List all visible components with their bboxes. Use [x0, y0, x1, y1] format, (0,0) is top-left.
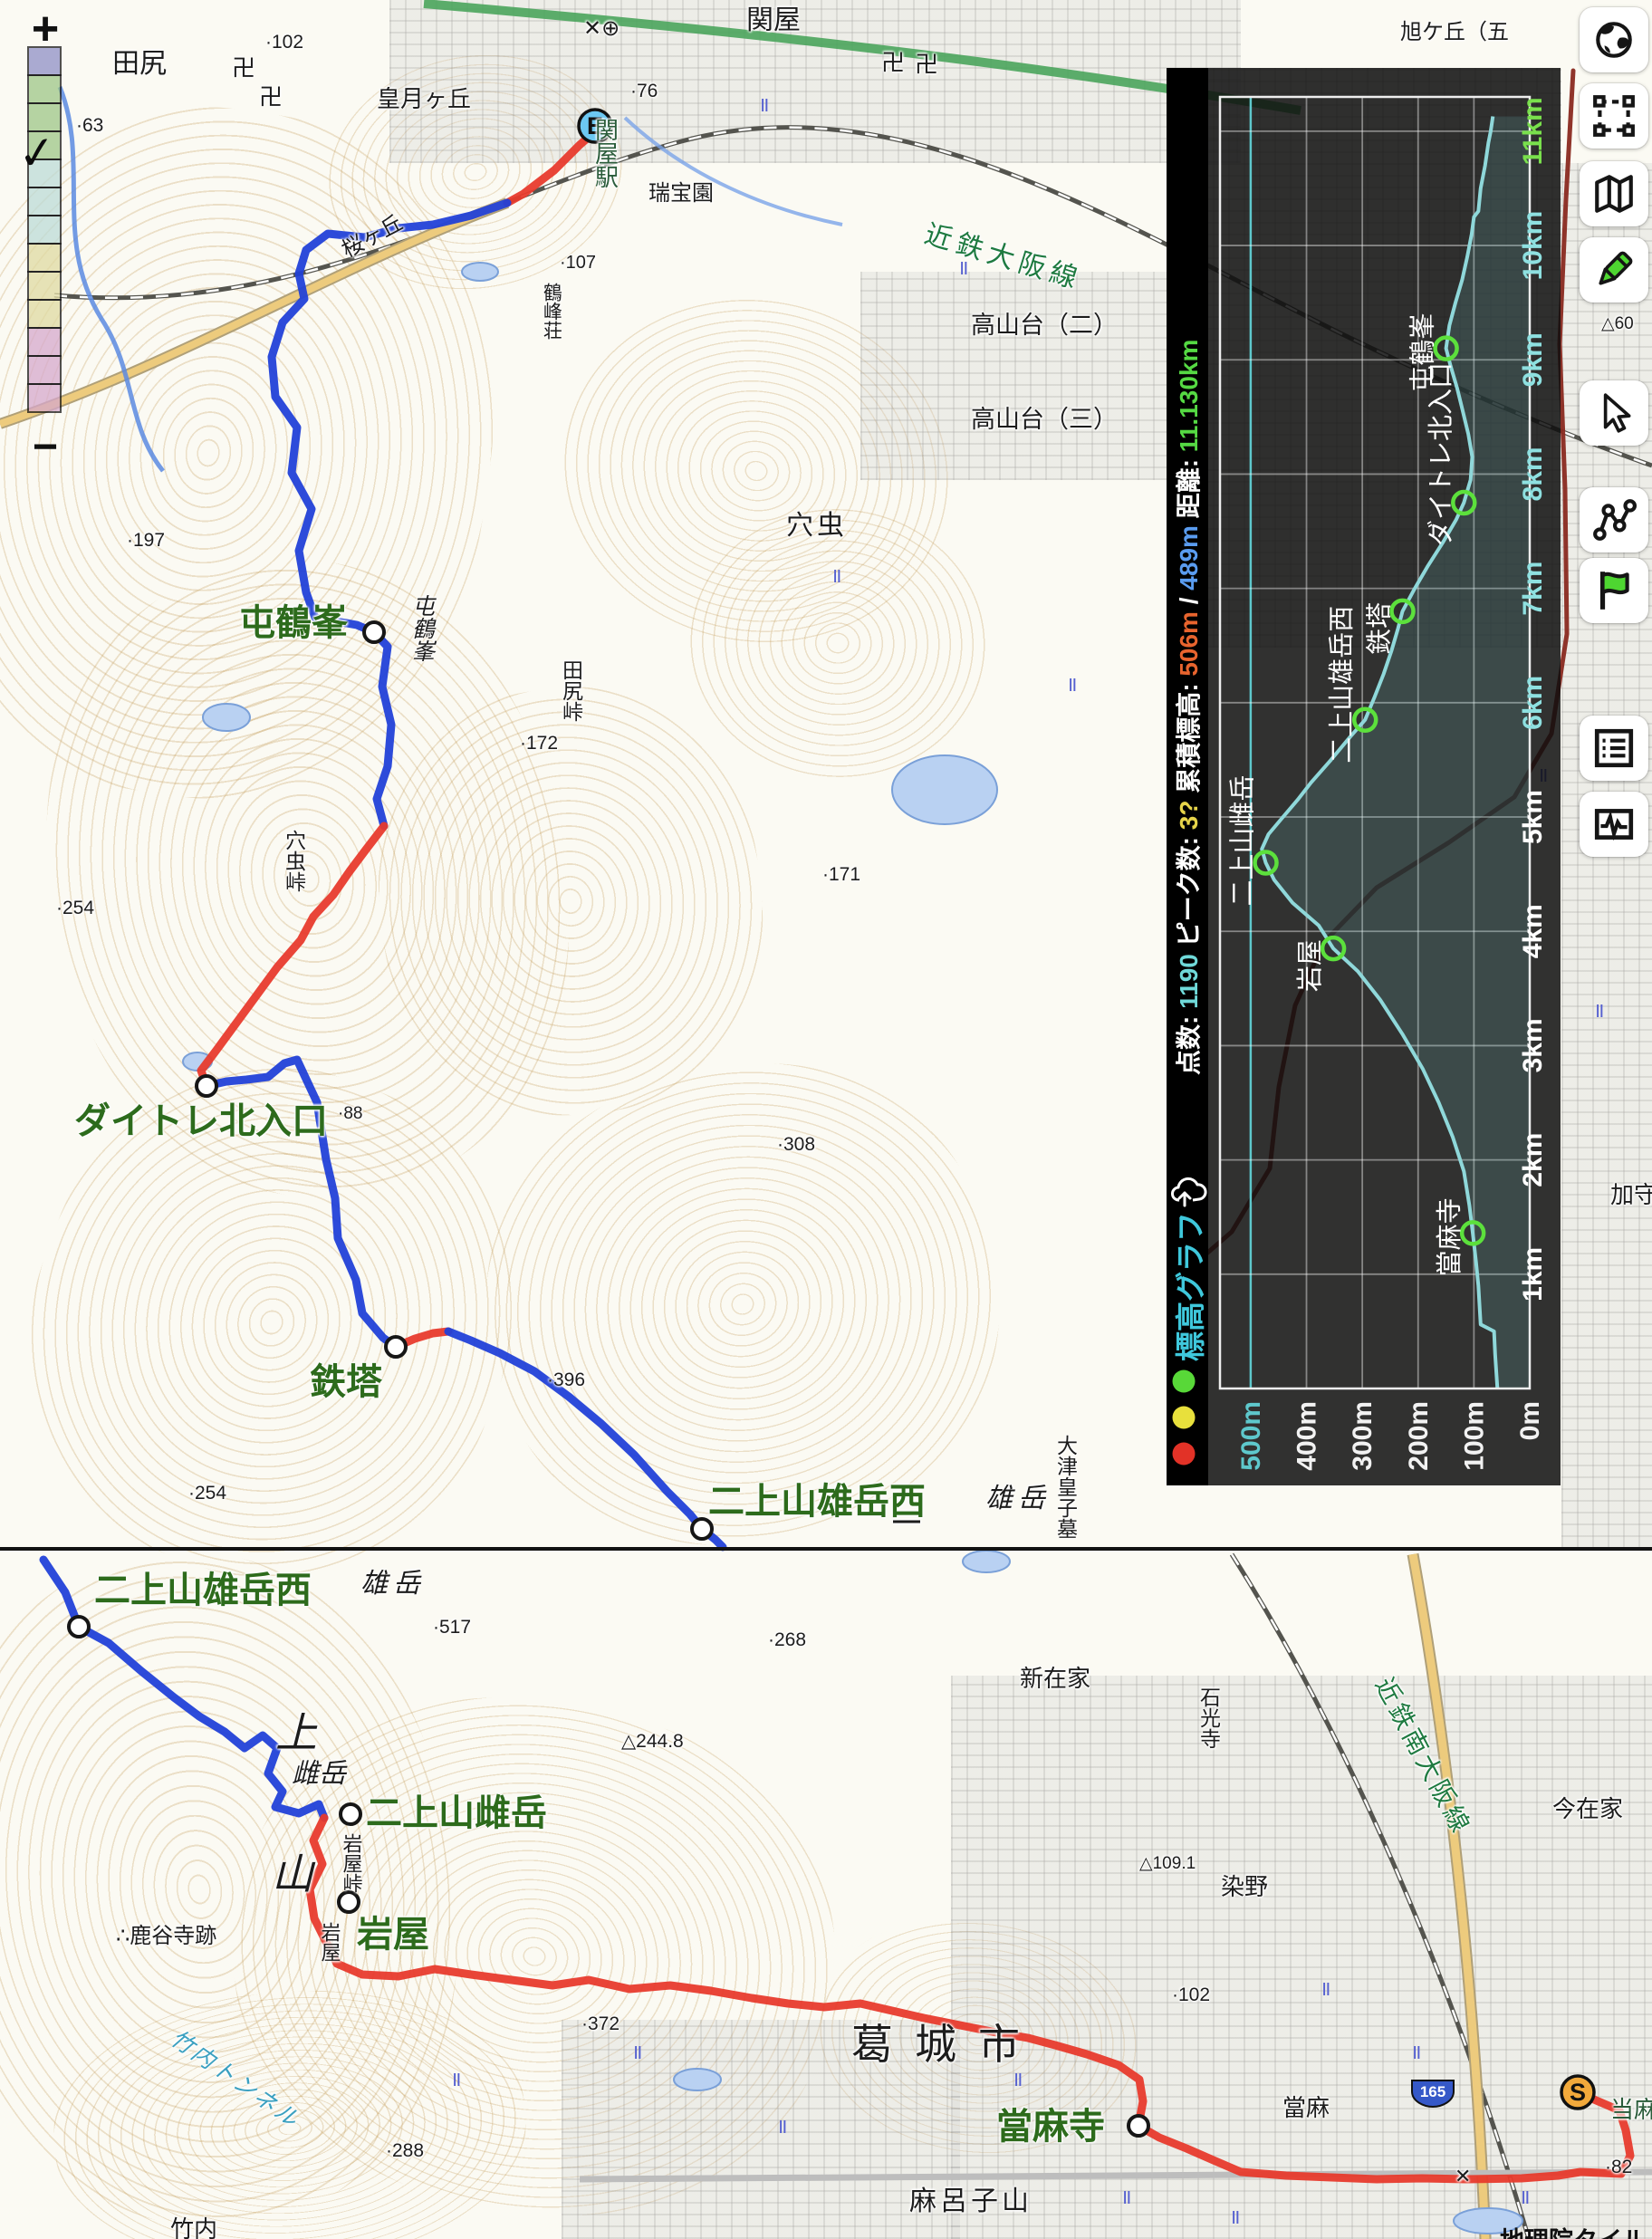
- chart-waypoint-label: 鉄塔: [1365, 602, 1395, 655]
- list-icon: [1591, 726, 1637, 771]
- waypoint-marker[interactable]: [341, 1804, 360, 1824]
- dist-axis-label: 4km: [1518, 904, 1548, 958]
- elev-axis-label: 400m: [1292, 1401, 1322, 1471]
- zoom-level-cell[interactable]: [27, 327, 62, 357]
- paddy-symbol: ||: [761, 97, 768, 112]
- pencil-icon: [1591, 247, 1637, 293]
- gps-track-red[interactable]: [310, 1818, 1630, 2179]
- flag-button[interactable]: [1580, 558, 1648, 623]
- road-casing: [1413, 1554, 1485, 2239]
- zoom-level-palette: [27, 48, 62, 413]
- waypoint-marker[interactable]: [197, 1076, 216, 1096]
- track-stats-text: 点数: 1190 ピーク数: 3? 累積標高: 506m / 489m 距離: …: [1175, 340, 1203, 1075]
- dist-axis-label: 5km: [1518, 790, 1548, 844]
- legend-dot-0[interactable]: [1173, 1370, 1196, 1393]
- zoom-level-cell[interactable]: [27, 383, 62, 413]
- paddy-symbol: ||: [1014, 2071, 1022, 2087]
- select-area-button[interactable]: [1580, 83, 1648, 149]
- elevation-panel: 當麻寺岩屋二上山雌岳二上山雄岳西鉄塔ダイトレ北入口屯鶴峯1km2km3km4km…: [1167, 68, 1561, 1485]
- svg-text:E: E: [587, 112, 603, 139]
- waypoint-marker[interactable]: [692, 1519, 712, 1539]
- cursor-icon: [1591, 390, 1637, 436]
- dist-axis-label: 8km: [1518, 447, 1548, 501]
- paddy-symbol: ||: [634, 2044, 641, 2060]
- route-end-marker: E: [579, 110, 611, 142]
- chart-waypoint-label: 當麻寺: [1435, 1197, 1465, 1276]
- paddy-symbol: ||: [453, 2071, 460, 2087]
- gps-track-blue[interactable]: [448, 1331, 723, 1547]
- chart-waypoint-label: 屯鶴峯: [1408, 313, 1438, 392]
- zoom-level-cell[interactable]: [27, 271, 62, 301]
- elev-axis-label: 500m: [1236, 1401, 1266, 1471]
- list-button[interactable]: [1580, 716, 1648, 781]
- paddy-symbol: ||: [1596, 1003, 1603, 1018]
- river: [60, 87, 163, 471]
- waypoint-marker[interactable]: [69, 1617, 89, 1637]
- globe-button[interactable]: [1580, 7, 1648, 72]
- zoom-out-button[interactable]: −: [25, 422, 65, 472]
- zoom-level-cell[interactable]: [27, 243, 62, 273]
- route-165-shield: 165: [1412, 2080, 1454, 2107]
- map-attribution: 地理院タイル: [1500, 2221, 1647, 2239]
- route-nodes-icon: [1591, 497, 1637, 543]
- waypoint-marker[interactable]: [1129, 2116, 1148, 2136]
- stream: [625, 118, 842, 225]
- dist-axis-label: 9km: [1518, 332, 1548, 387]
- elev-axis-label: 200m: [1404, 1401, 1434, 1471]
- gps-track-red[interactable]: [201, 826, 384, 1086]
- dist-axis-label: 3km: [1518, 1018, 1548, 1072]
- zoom-level-cell[interactable]: [27, 46, 62, 76]
- pond: [892, 755, 997, 824]
- activity-graph-icon: [1591, 802, 1637, 847]
- paddy-symbol: ||: [1123, 2189, 1130, 2205]
- current-zoom-check-icon: ✓: [15, 125, 59, 181]
- paddy-symbol: ||: [833, 568, 840, 583]
- svg-text:S: S: [1570, 2079, 1586, 2106]
- route-start-marker: S: [1561, 2076, 1594, 2109]
- elevation-area-fill: [1262, 117, 1530, 1389]
- elev-axis-label: 100m: [1459, 1401, 1489, 1471]
- paddy-symbol: ||: [960, 260, 967, 275]
- elev-axis-label: 300m: [1348, 1401, 1378, 1471]
- flag-icon: [1591, 568, 1637, 613]
- paddy-symbol: ||: [1069, 677, 1076, 692]
- zoom-level-cell[interactable]: [27, 299, 62, 329]
- paddy-symbol: ||: [779, 2119, 786, 2134]
- folded-map-icon: [1591, 171, 1637, 216]
- globe-icon: [1591, 17, 1637, 62]
- pointer-button[interactable]: [1580, 380, 1648, 446]
- gps-track-blue[interactable]: [206, 1060, 396, 1347]
- dist-axis-label: 6km: [1518, 676, 1548, 730]
- pond: [674, 2069, 721, 2090]
- route-button[interactable]: [1580, 487, 1648, 553]
- zoom-level-cell[interactable]: [27, 215, 62, 245]
- pond: [963, 1551, 1010, 1572]
- dist-axis-label: 7km: [1518, 562, 1548, 616]
- pond: [203, 704, 250, 731]
- elev-axis-label: 0m: [1515, 1401, 1545, 1440]
- pond: [462, 263, 498, 281]
- zoom-level-cell[interactable]: [27, 355, 62, 385]
- graph-title-vertical: 標高グラフ: [1174, 1212, 1207, 1361]
- map-style-button[interactable]: [1580, 161, 1648, 226]
- legend-dot-2[interactable]: [1173, 1443, 1196, 1465]
- elevation-chart[interactable]: 當麻寺岩屋二上山雌岳二上山雄岳西鉄塔ダイトレ北入口屯鶴峯1km2km3km4km…: [1167, 68, 1561, 1485]
- app-window: ||||||||||||||||||||||||||||||ES165 田尻·1…: [0, 0, 1652, 2239]
- zoom-level-cell[interactable]: [27, 187, 62, 216]
- waypoint-marker[interactable]: [339, 1892, 359, 1912]
- waypoint-marker[interactable]: [364, 622, 384, 642]
- chart-waypoint-label: 二上山雄岳西: [1327, 606, 1357, 764]
- dist-axis-label: 11km: [1518, 97, 1548, 165]
- draw-button[interactable]: [1580, 237, 1648, 303]
- paddy-symbol: ||: [1413, 2044, 1420, 2060]
- dist-axis-label: 10km: [1518, 211, 1548, 281]
- elevation-graph-button[interactable]: [1580, 792, 1648, 857]
- selection-box-icon: [1591, 93, 1637, 139]
- dist-axis-label: 1km: [1518, 1247, 1548, 1302]
- dist-axis-label: 2km: [1518, 1133, 1548, 1187]
- chart-waypoint-label: 岩屋: [1295, 939, 1325, 992]
- chart-waypoint-label: 二上山雌岳: [1228, 774, 1258, 906]
- attribution-text: 地理院タイル: [1500, 2227, 1647, 2239]
- map-section-divider: [0, 1547, 1652, 1551]
- paddy-symbol: ||: [1322, 1981, 1330, 1996]
- zoom-level-cell[interactable]: [27, 74, 62, 104]
- gps-track-blue[interactable]: [272, 203, 507, 826]
- paddy-symbol: ||: [1522, 2189, 1529, 2205]
- waypoint-marker[interactable]: [386, 1337, 406, 1357]
- gps-track-blue[interactable]: [43, 1560, 324, 1818]
- paddy-symbol: ||: [1232, 2209, 1239, 2225]
- legend-dot-1[interactable]: [1173, 1407, 1196, 1429]
- svg-text:165: 165: [1420, 2083, 1445, 2100]
